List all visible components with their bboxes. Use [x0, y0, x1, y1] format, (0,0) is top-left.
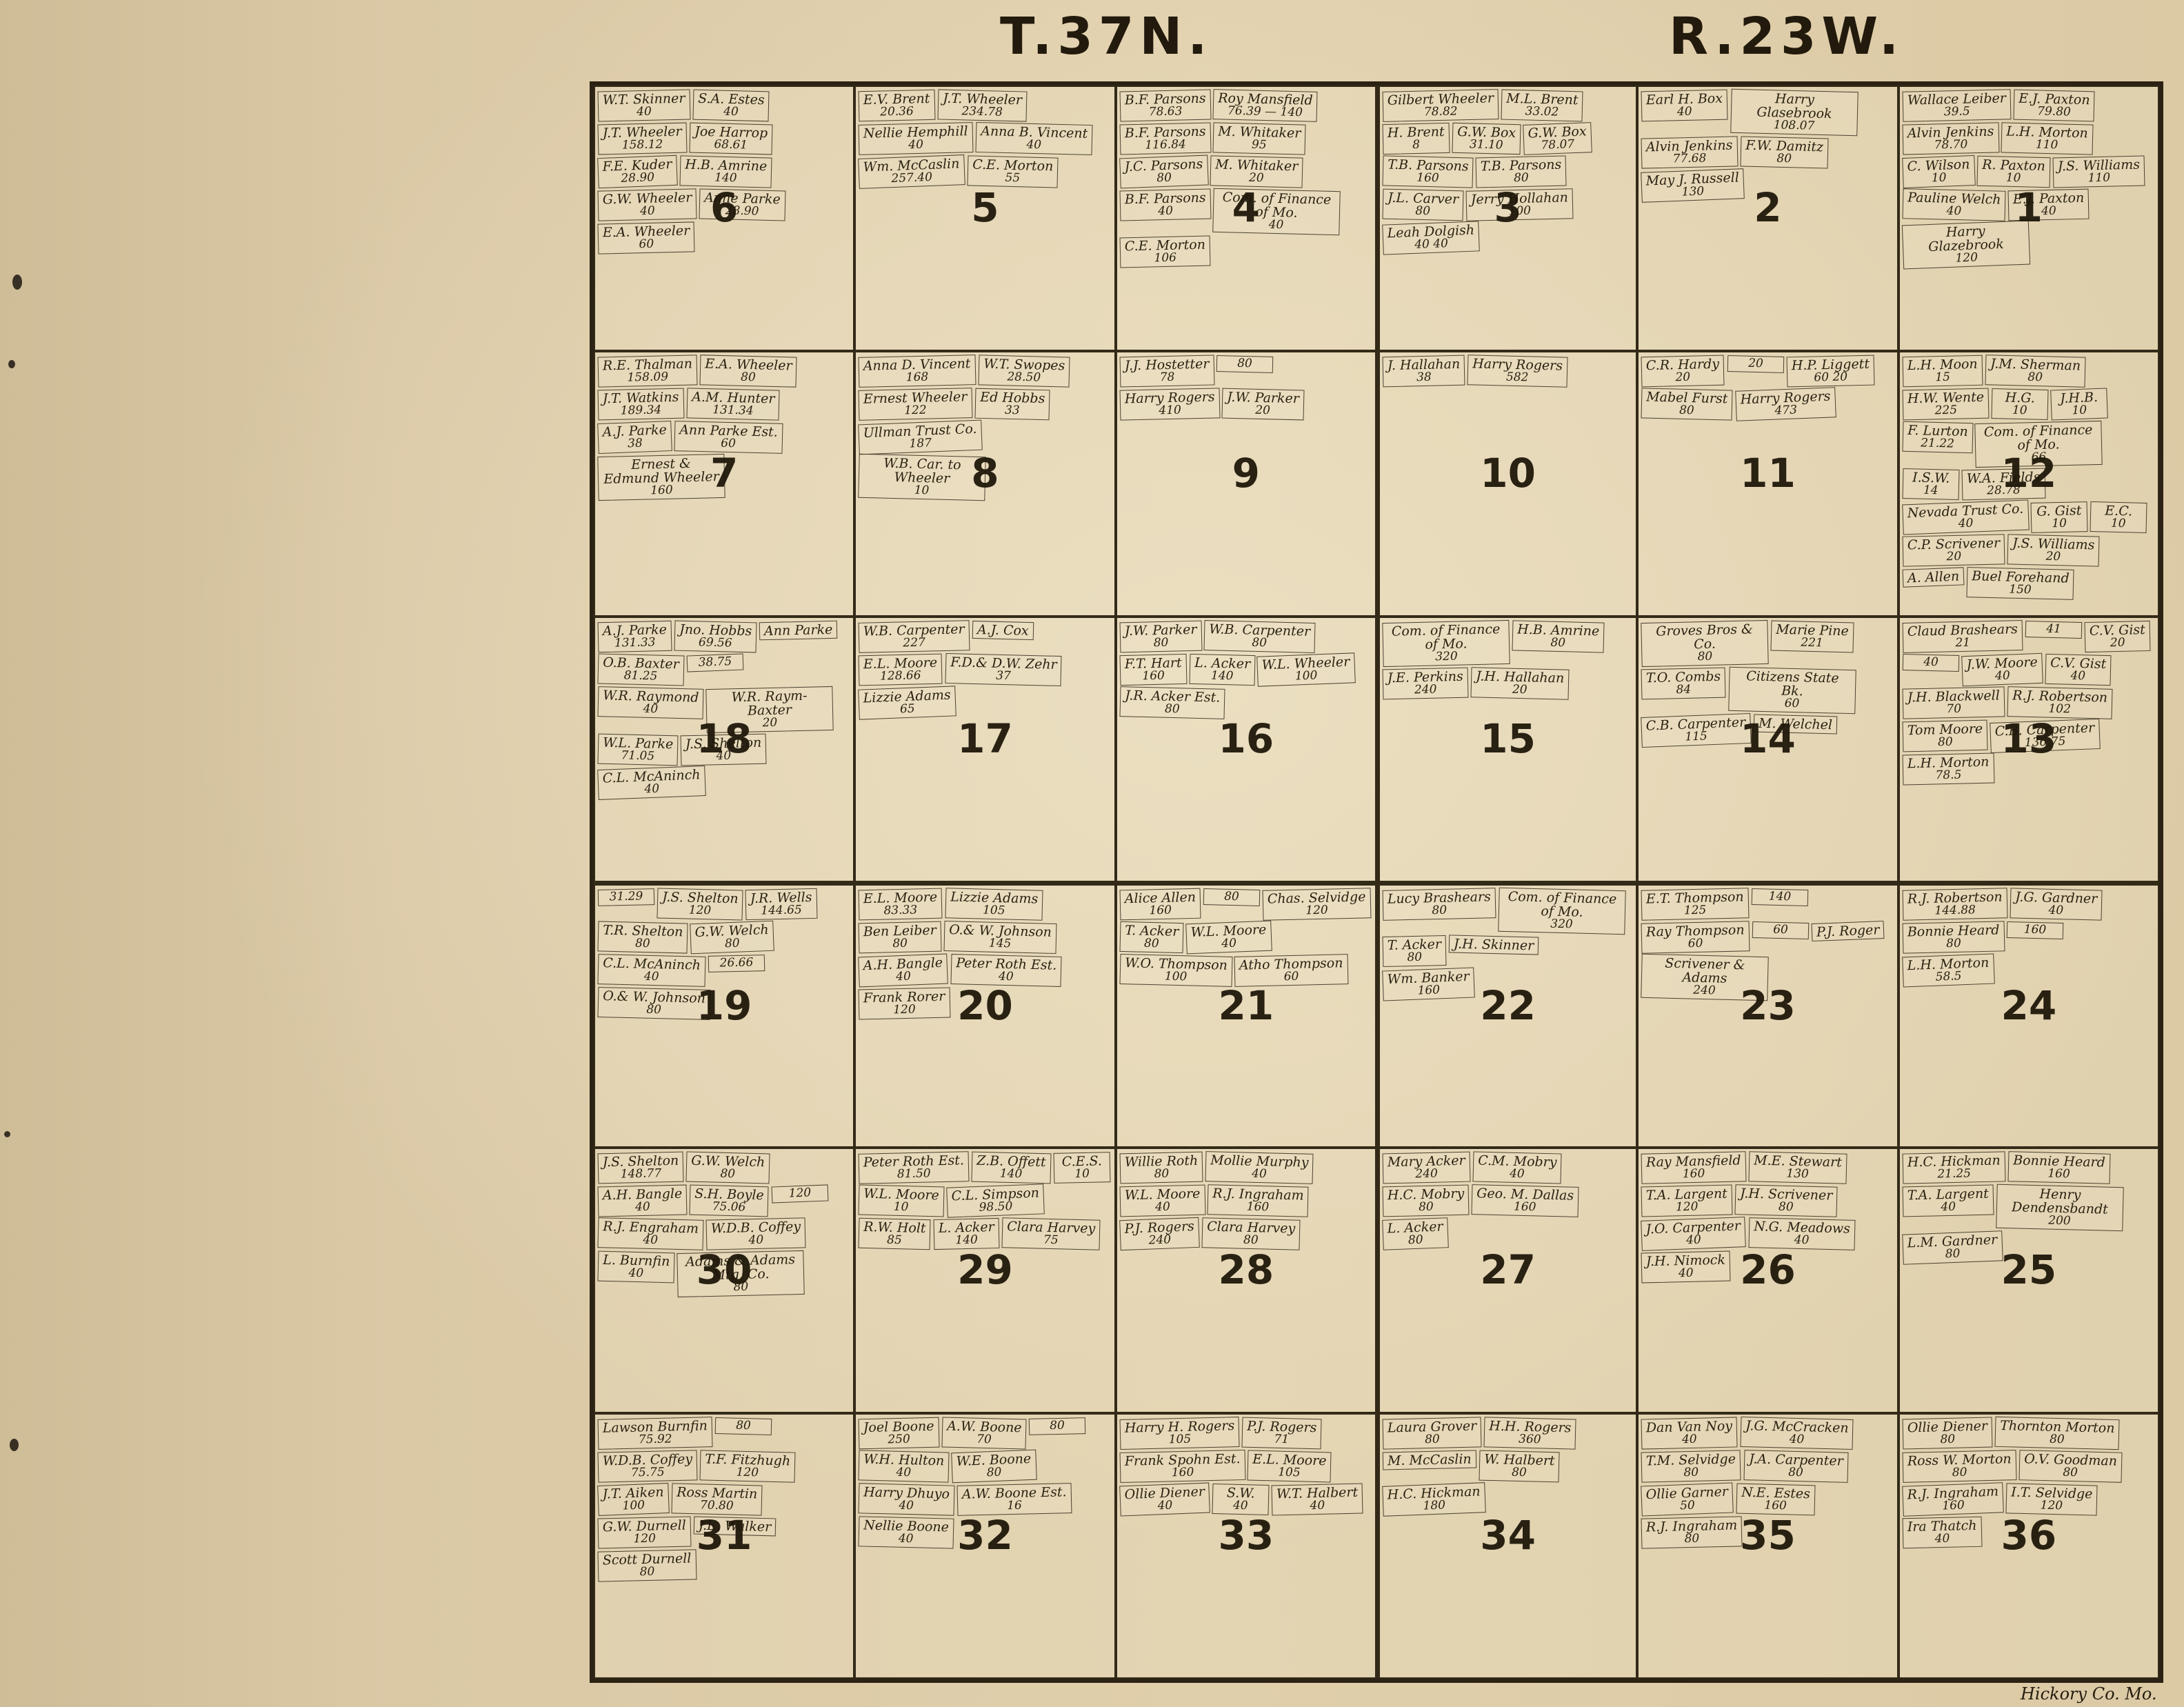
paper-speck	[4, 1131, 10, 1137]
section-14: 14 Groves Bros & Co.80Marie Pine221T.O. …	[1637, 617, 1898, 882]
parcel: T.A. Largent120	[1641, 1184, 1733, 1217]
township-title: T.37N.	[1000, 7, 1212, 66]
parcel: Com. of Finance of Mo.320	[1382, 620, 1510, 667]
paper-speck	[12, 274, 22, 290]
section-29: 29 Peter Roth Est.81.50Z.B. Offett140C.E…	[854, 1148, 1115, 1413]
parcel-list: Joel Boone250A.W. Boone7080W.H. Hulton40…	[859, 1418, 1111, 1674]
parcel-acres: 10	[2036, 517, 2083, 530]
section-24: 24 R.J. Robertson144.88J.G. Gardner40Bon…	[1899, 882, 2159, 1148]
parcel-owner: Com. of Finance of Mo.	[1218, 190, 1336, 221]
parcel: Anne Parke28.90	[699, 188, 786, 221]
parcel: T.O. Combs84	[1641, 668, 1726, 700]
parcel: I.T. Selvidge120	[2006, 1483, 2098, 1515]
parcel: C.R. Hardy20	[1641, 355, 1725, 388]
parcel-list: Laura Grover80H.H. Rogers360M. McCaslinW…	[1383, 1418, 1633, 1674]
parcel: 40	[1902, 654, 1959, 672]
parcel: H.B. Amrine140	[679, 155, 772, 188]
parcel: M. Whitaker20	[1210, 155, 1303, 188]
section-2: 2 Earl H. Box40Harry Glasebrook108.07Alv…	[1637, 86, 1898, 351]
parcel: J.H. Blackwell70	[1902, 686, 2005, 719]
parcel: N.E. Estes160	[1736, 1484, 1815, 1516]
parcel: Harry Rogers410	[1119, 388, 1220, 420]
parcel: Peter Roth Est.81.50	[859, 1151, 970, 1184]
parcel-list: Gilbert Wheeler78.82M.L. Brent33.02H. Br…	[1383, 90, 1633, 346]
parcel: Wm. McCaslin257.40	[859, 154, 965, 189]
parcel: G.W. Durnell120	[598, 1516, 692, 1548]
parcel: T. Acker80	[1119, 921, 1183, 953]
parcel-acres: 76.39 — 140	[1218, 105, 1313, 119]
parcel-owner: A.J. Cox	[977, 623, 1029, 638]
section-28: 28 Willie Roth80Mollie Murphy40W.L. Moor…	[1116, 1148, 1376, 1413]
parcel-acres: 40	[2050, 670, 2105, 683]
parcel: Nellie Boone40	[859, 1516, 954, 1548]
parcel: J.C. Parsons80	[1119, 155, 1208, 189]
parcel: 80	[1029, 1417, 1086, 1435]
parcel: L.M. Gardner80	[1902, 1230, 2003, 1264]
parcel-owner: Ernest & Edmund Wheeler	[602, 456, 720, 486]
parcel-owner: W.R. Raym-Baxter	[711, 688, 829, 719]
parcel: Jno. Hobbs69.56	[674, 621, 757, 653]
parcel-acres: 131.33	[603, 637, 667, 650]
section-36: 36 Ollie Diener80Thornton Morton80Ross W…	[1899, 1413, 2159, 1679]
parcel: 160	[2007, 921, 2064, 939]
parcel: A.W. Boone Est.16	[957, 1483, 1072, 1516]
parcel: Harry Rogers473	[1735, 387, 1836, 421]
parcel: L.H. Morton78.5	[1902, 752, 1994, 785]
parcel: J.S. Williams110	[2053, 155, 2145, 188]
section-10: 10 J. Hallahan38Harry Rogers582	[1376, 351, 1637, 617]
parcel: 80	[715, 1417, 772, 1435]
parcel-acres: 40	[1125, 1201, 1201, 1215]
parcel: H.C. Hickman21.25	[1902, 1151, 2005, 1184]
parcel-acres: 20	[1732, 357, 1779, 370]
parcel: I.S.W.14	[1902, 468, 1959, 500]
parcel: J.E. Perkins240	[1383, 668, 1469, 700]
parcel-list: Com. of Finance of Mo.320H.B. Amrine80J.…	[1383, 621, 1633, 877]
parcel: Ray Mansfield160	[1641, 1151, 1747, 1184]
parcel-acres: 14	[1907, 484, 1954, 497]
parcel: Ben Leiber80	[859, 921, 942, 954]
parcel: C.V. Gist20	[2084, 621, 2150, 652]
parcel-acres: 38.75	[691, 656, 739, 670]
parcel-acres: 160	[2012, 924, 2058, 937]
parcel: J.H. Nimock40	[1641, 1250, 1731, 1283]
parcel: C.V. Gist40	[2045, 654, 2111, 686]
parcel-acres: 71.05	[603, 750, 673, 763]
parcel: T. Acker80	[1383, 935, 1447, 967]
parcel: Ann Parke	[759, 621, 838, 641]
parcel: 20	[1727, 355, 1784, 373]
parcel-acres: 10	[1059, 1168, 1105, 1181]
parcel: B.F. Parsons78.63	[1119, 90, 1211, 122]
parcel: 38.75	[686, 653, 743, 672]
parcel-acres: 31.29	[603, 890, 650, 904]
section-6: 6 W.T. Skinner40S.A. Estes40J.T. Wheeler…	[594, 86, 854, 351]
parcel-acres: 40	[2013, 205, 2085, 219]
parcel: E.C.10	[2090, 501, 2147, 533]
parcel: Wallace Leiber39.5	[1902, 89, 2011, 122]
parcel-owner: P.J. Roger	[1816, 923, 1880, 939]
parcel-acres: 250	[863, 1433, 934, 1447]
parcel: G.W. Box78.07	[1523, 122, 1592, 155]
parcel: Frank Spohn Est.160	[1119, 1450, 1245, 1483]
parcel: Nevada Trust Co.40	[1902, 500, 2029, 535]
parcel: Groves Bros & Co.80	[1641, 620, 1769, 667]
range-title: R.23W.	[1669, 7, 1904, 66]
parcel-acres: 148.77	[603, 1168, 679, 1181]
parcel-owner: M. Welchel	[1759, 717, 1833, 732]
parcel: J.T. Aiken100	[597, 1483, 670, 1516]
parcel: R.J. Ingraham160	[1208, 1184, 1309, 1217]
parcel: E.V. Brent20.36	[859, 90, 936, 121]
parcel-acres: 80	[1208, 890, 1255, 904]
county-label: Hickory Co. Mo.	[2021, 1684, 2157, 1704]
parcel: Ernest & Edmund Wheeler160	[597, 454, 725, 501]
parcel: E.L. Moore83.33	[859, 888, 943, 921]
parcel: Laura Grover80	[1383, 1417, 1482, 1449]
parcel-owner: Adams & Adams Mtg. Co.	[681, 1252, 799, 1283]
parcel: S.A. Estes40	[692, 90, 769, 122]
parcel: N.G. Meadows40	[1748, 1217, 1855, 1250]
parcel: H. Brent8	[1383, 123, 1450, 154]
parcel: J.E. Walker	[694, 1516, 777, 1536]
parcel-list: R.J. Robertson144.88J.G. Gardner40Bonnie…	[1903, 889, 2155, 1143]
parcel: Ollie Garner50	[1641, 1482, 1734, 1516]
plat-map: 6 W.T. Skinner40S.A. Estes40J.T. Wheeler…	[590, 81, 2163, 1683]
parcel: J.J. Hostetter78	[1119, 355, 1214, 387]
parcel: Alice Allen160	[1119, 888, 1201, 921]
parcel-list: Alice Allen16080Chas. Selvidge120T. Acke…	[1120, 889, 1372, 1143]
parcel: Lizzie Adams105	[945, 888, 1043, 920]
parcel-acres: 80	[1221, 357, 1268, 370]
parcel: Harry Rogers582	[1467, 355, 1568, 387]
parcel: Jerry Hollahan100	[1465, 188, 1573, 221]
parcel: Dan Van Noy40	[1641, 1417, 1738, 1449]
parcel-owner: Ann Parke	[764, 623, 833, 638]
section-26: 26 Ray Mansfield160M.E. Stewart130T.A. L…	[1637, 1148, 1898, 1413]
parcel: G.W. Welch80	[690, 921, 774, 955]
parcel: 60	[1752, 921, 1810, 939]
parcel: Harry Glazebrook120	[1901, 220, 2030, 269]
parcel: W.L. Moore40	[1185, 921, 1272, 955]
parcel: J.T. Watkins189.34	[598, 388, 685, 421]
parcel-acres: 20.36	[863, 106, 930, 119]
parcel-acres: 38	[1387, 371, 1461, 385]
parcel: W.L. Wheeler100	[1257, 652, 1356, 686]
parcel: W.T. Skinner40	[598, 89, 691, 121]
parcel: Earl H. Box40	[1641, 90, 1728, 122]
parcel: E.L. Moore105	[1248, 1450, 1332, 1482]
parcel-acres: 80	[1125, 637, 1197, 650]
section-15: 15 Com. of Finance of Mo.320H.B. Amrine8…	[1376, 617, 1637, 882]
parcel: J.W. Parker20	[1222, 388, 1305, 421]
parcel: H.C. Hickman180	[1382, 1482, 1486, 1517]
parcel-list: Ollie Diener80Thornton Morton80Ross W. M…	[1903, 1418, 2155, 1674]
parcel-acres: 40	[1216, 1499, 1263, 1513]
parcel: F.D.& D.W. Zehr37	[945, 653, 1061, 686]
parcel: W.B. Carpenter227	[859, 620, 970, 653]
parcel-acres: 41	[2030, 623, 2077, 636]
parcel: Wm. Banker160	[1382, 968, 1475, 1001]
parcel: Gilbert Wheeler78.82	[1383, 89, 1499, 122]
parcel: R. Paxton10	[1977, 156, 2051, 188]
parcel: Ray Thompson60	[1641, 921, 1750, 954]
section-20: 20 E.L. Moore83.33Lizzie Adams105Ben Lei…	[854, 882, 1115, 1148]
parcel: J.G. Gardner40	[2010, 888, 2102, 920]
parcel: J.R. Acker Est.80	[1119, 686, 1225, 719]
parcel-owner: M. McCaslin	[1387, 1453, 1472, 1468]
parcel: Ann Parke Est.60	[674, 421, 783, 454]
parcel: Claud Brashears21	[1902, 620, 2023, 653]
parcel-list: A.J. Parke131.33Jno. Hobbs69.56Ann Parke…	[598, 621, 850, 877]
parcel-acres: 71	[1247, 1433, 1317, 1447]
parcel-owner: Harry Glazebrook	[1907, 223, 2025, 255]
parcel: F. Lurton21.22	[1902, 421, 1973, 453]
parcel: B.F. Parsons116.84	[1119, 122, 1211, 154]
parcel: Marie Pine221	[1771, 621, 1854, 653]
parcel: Lawson Burnfin75.92	[598, 1417, 713, 1450]
parcel: C.B. Carpenter115	[1641, 713, 1752, 748]
parcel: Anna B. Vincent40	[976, 122, 1093, 155]
parcel-list: 31.29J.S. Shelton120J.R. Wells144.65T.R.…	[598, 889, 850, 1143]
parcel: Mabel Furst80	[1641, 388, 1733, 420]
parcel: O.& W. Johnson145	[944, 921, 1057, 954]
section-16: 16 J.W. Parker80W.B. Carpenter80F.T. Har…	[1116, 617, 1376, 882]
parcel: M. Welchel	[1754, 715, 1838, 735]
parcel-list: Earl H. Box40Harry Glasebrook108.07Alvin…	[1641, 90, 1894, 346]
parcel: A.M. Hunter131.34	[686, 388, 779, 420]
section-27: 27 Mary Acker240C.M. Mobry40H.C. Mobry80…	[1376, 1148, 1637, 1413]
parcel: W.T. Halbert40	[1271, 1483, 1363, 1515]
section-3: 3 Gilbert Wheeler78.82M.L. Brent33.02H. …	[1376, 86, 1637, 351]
parcel: W.L. Parke71.05	[597, 734, 678, 766]
parcel: Harry Dhuyo40	[859, 1483, 955, 1515]
parcel-acres: 80	[682, 1280, 799, 1295]
parcel: F.T. Hart160	[1119, 654, 1187, 686]
parcel-acres: 26.66	[713, 957, 760, 970]
parcel: B.F. Parsons40	[1119, 188, 1211, 221]
parcel-list: Peter Roth Est.81.50Z.B. Offett140C.E.S.…	[859, 1152, 1111, 1408]
parcel-owner: J.H. Skinner	[1454, 937, 1534, 953]
parcel: G.W. Wheeler40	[598, 188, 697, 221]
parcel: A. Allen	[1902, 567, 1964, 588]
parcel-acres: 80	[863, 937, 936, 951]
parcel: H.H. Rogers360	[1484, 1417, 1576, 1449]
parcel: C.P. Scrivener20	[1902, 534, 2005, 566]
parcel: J.S. Shelton40	[681, 734, 767, 766]
parcel: W.L. Moore10	[859, 1184, 945, 1217]
parcel-acres: 80	[1125, 1168, 1199, 1181]
parcel: F.W. Damitz80	[1740, 137, 1828, 169]
parcel-list: B.F. Parsons78.63Roy Mansfield76.39 — 14…	[1120, 90, 1372, 346]
parcel: P.J. Rogers240	[1119, 1217, 1200, 1250]
parcel-acres: 10	[2095, 517, 2142, 530]
parcel: A.J. Parke131.33	[598, 621, 672, 652]
parcel-acres: 140	[939, 1234, 994, 1248]
parcel-owner: Groves Bros & Co.	[1646, 622, 1764, 652]
parcel: M. Whitaker95	[1213, 122, 1306, 154]
parcel: Bonnie Heard80	[1902, 921, 2005, 953]
parcel-acres: 33	[979, 404, 1045, 418]
parcel-list: E.T. Thompson125140Ray Thompson6060P.J. …	[1641, 889, 1894, 1143]
parcel-acres: 8	[1387, 139, 1445, 152]
parcel: Tom Moore80	[1902, 720, 1987, 752]
parcel: H.C. Mobry80	[1383, 1185, 1470, 1217]
section-17: 17 W.B. Carpenter227A.J. CoxE.L. Moore12…	[854, 617, 1115, 882]
parcel: M.L. Brent33.02	[1501, 90, 1583, 122]
parcel: W.D.B. Coffey75.75	[598, 1450, 698, 1482]
parcel: Citizens State Bk.60	[1728, 667, 1856, 715]
parcel: C.B. Carpenter136.75	[1990, 719, 2100, 753]
parcel: G.W. Welch80	[686, 1152, 770, 1184]
parcel: Scrivener & Adams240	[1641, 954, 1770, 1001]
parcel: Joel Boone250	[859, 1417, 940, 1450]
parcel: T.B. Parsons80	[1476, 155, 1567, 188]
parcel-list: Wallace Leiber39.5E.J. Paxton79.80Alvin …	[1903, 90, 2155, 346]
section-1: 1 Wallace Leiber39.5E.J. Paxton79.80Alvi…	[1899, 86, 2159, 351]
parcel: W.T. Swopes28.50	[978, 355, 1070, 387]
parcel-owner: Citizens State Bk.	[1733, 669, 1851, 699]
parcel-list: Lawson Burnfin75.9280W.D.B. Coffey75.75T…	[598, 1418, 850, 1674]
parcel-acres: 140	[1194, 670, 1250, 683]
parcel: Ullman Trust Co.187	[859, 420, 983, 455]
section-35: 35 Dan Van Noy40J.G. McCracken40T.M. Sel…	[1637, 1413, 1898, 1679]
parcel-owner: W.B. Car. to Wheeler	[863, 456, 981, 486]
parcel-list: Claud Brashears2141C.V. Gist2040J.W. Moo…	[1903, 621, 2155, 877]
parcel-acres: 40	[1646, 106, 1723, 119]
parcel: Anna D. Vincent168	[859, 355, 976, 388]
parcel: S.H. Boyle75.06	[690, 1185, 770, 1217]
section-34: 34 Laura Grover80H.H. Rogers360M. McCasl…	[1376, 1413, 1637, 1679]
parcel: W.A. Fields28.78	[1961, 468, 2045, 501]
parcel-list: Willie Roth80Mollie Murphy40W.L. Moore40…	[1120, 1152, 1372, 1408]
parcel: J.T. Wheeler158.12	[598, 123, 688, 155]
parcel-list: E.V. Brent20.36J.T. Wheeler234.78Nellie …	[859, 90, 1111, 346]
parcel: W.B. Car. to Wheeler10	[859, 454, 987, 501]
parcel-list: H.C. Hickman21.25Bonnie Heard160T.A. Lar…	[1903, 1152, 2155, 1408]
parcel: Harry Glasebrook108.07	[1730, 89, 1859, 137]
parcel: L.H. Morton110	[2001, 122, 2094, 154]
parcel: Adams & Adams Mtg. Co.80	[677, 1250, 804, 1297]
parcel-acres: 40	[1907, 1533, 1977, 1546]
parcel: M. McCaslin	[1383, 1450, 1476, 1470]
parcel: Geo. M. Dallas160	[1472, 1184, 1579, 1217]
parcel: Scott Durnell80	[598, 1549, 697, 1581]
parcel: R.J. Ingraham80	[1641, 1516, 1743, 1548]
section-19: 19 31.29J.S. Shelton120J.R. Wells144.65T…	[594, 882, 854, 1148]
parcel: C.E.S.10	[1053, 1152, 1110, 1184]
parcel: W.B. Carpenter80	[1204, 620, 1316, 653]
parcel-acres: 10	[863, 483, 981, 499]
parcel: Bonnie Heard160	[2007, 1151, 2110, 1184]
parcel-owner: J.E. Walker	[699, 1519, 772, 1535]
parcel-list: E.L. Moore83.33Lizzie Adams105Ben Leiber…	[859, 889, 1111, 1143]
parcel: Ross W. Morton80	[1902, 1450, 2016, 1483]
section-22: 22 Lucy Brashears80Com. of Finance of Mo…	[1376, 882, 1637, 1148]
parcel: T.M. Selvidge80	[1641, 1450, 1741, 1482]
parcel-acres: 80	[1034, 1419, 1081, 1433]
parcel-acres: 20	[2090, 637, 2145, 650]
parcel: O.V. Goodman80	[2018, 1450, 2122, 1483]
parcel-acres: 80	[1124, 937, 1179, 951]
parcel: W. Halbert80	[1479, 1450, 1559, 1483]
parcel-acres: 189.34	[603, 404, 679, 418]
parcel: J.S. Shelton148.77	[598, 1152, 684, 1184]
parcel-acres: 15	[1907, 371, 1978, 385]
parcel-acres: 40	[603, 1267, 670, 1281]
parcel-acres: 83.33	[863, 904, 938, 918]
parcel: R.J. Engraham40	[597, 1217, 703, 1250]
parcel: Peter Roth Est.40	[950, 954, 1061, 987]
parcel: O.& W. Johnson80	[597, 987, 710, 1020]
parcel: H.G.10	[1991, 388, 2048, 420]
parcel-list: Ray Mansfield160M.E. Stewart130T.A. Larg…	[1641, 1152, 1894, 1408]
parcel: Chas. Selvidge120	[1262, 888, 1371, 921]
parcel: 41	[2025, 621, 2083, 639]
parcel: T.B. Parsons160	[1382, 155, 1474, 188]
parcel: Z.B. Offett140	[972, 1152, 1052, 1184]
parcel-owner: Com. of Finance of Mo.	[1387, 622, 1505, 652]
parcel: 120	[771, 1184, 828, 1203]
parcel: L. Acker80	[1382, 1217, 1449, 1250]
parcel: W.R. Raymond40	[597, 686, 703, 719]
parcel: O.B. Baxter81.25	[597, 653, 684, 686]
section-4: 4 B.F. Parsons78.63Roy Mansfield76.39 — …	[1116, 86, 1376, 351]
parcel: F.E. Kuder28.90	[597, 155, 677, 188]
parcel: A.W. Boone70	[942, 1417, 1027, 1450]
section-30: 30 J.S. Shelton148.77G.W. Welch80A.H. Ba…	[594, 1148, 854, 1413]
parcel-list: W.B. Carpenter227A.J. CoxE.L. Moore128.6…	[859, 621, 1111, 877]
parcel-owner: A. Allen	[1907, 570, 1959, 586]
section-33: 33 Harry H. Rogers105P.J. Rogers71Frank …	[1116, 1413, 1376, 1679]
parcel: Nellie Hemphill40	[859, 122, 974, 155]
parcel: R.E. Thalman158.09	[598, 355, 698, 387]
parcel: A.H. Bangle40	[598, 1185, 688, 1217]
section-12: 12 L.H. Moon15J.M. Sherman80H.W. Wente22…	[1899, 351, 2159, 617]
parcel: Mollie Murphy40	[1205, 1151, 1314, 1184]
parcel: J.M. Sherman80	[1985, 355, 2085, 387]
parcel: Com. of Finance of Mo.66	[1975, 421, 2103, 468]
parcel: Henry Dendensbandt200	[1996, 1184, 2124, 1232]
section-23: 23 E.T. Thompson125140Ray Thompson6060P.…	[1637, 882, 1898, 1148]
parcel-acres: 10	[1996, 404, 2043, 417]
parcel-owner: Com. of Finance of Mo.	[1980, 423, 2098, 453]
parcel: 31.29	[598, 888, 655, 906]
parcel: Clara Harvey75	[1001, 1217, 1100, 1250]
parcel-acres: 240	[1387, 683, 1463, 697]
parcel-acres: 31.10	[1456, 139, 1515, 152]
parcel-acres: 80	[1387, 951, 1442, 965]
parcel: A.J. Cox	[972, 621, 1034, 640]
parcel-acres: 10	[1982, 172, 2045, 186]
section-11: 11 C.R. Hardy2020H.P. Liggett60 20Mabel …	[1637, 351, 1898, 617]
parcel-list: L.H. Moon15J.M. Sherman80H.W. Wente225H.…	[1903, 356, 2155, 612]
parcel-acres: 160	[1125, 670, 1182, 683]
parcel: M.E. Stewart130	[1749, 1151, 1847, 1184]
section-8: 8 Anna D. Vincent168W.T. Swopes28.50Erne…	[854, 351, 1115, 617]
parcel: C.M. Mobry40	[1472, 1151, 1561, 1184]
parcel-acres: 21.22	[1907, 437, 1967, 451]
parcel: G. Gist10	[2031, 501, 2088, 533]
parcel: E.L. Moore128.66	[859, 654, 943, 686]
parcel-acres: 40	[1218, 218, 1335, 233]
parcel-acres: 85	[863, 1234, 926, 1248]
parcel: Ed Hobbs33	[974, 388, 1050, 421]
parcel: Lucy Brashears80	[1383, 888, 1496, 921]
parcel-list: C.R. Hardy2020H.P. Liggett60 20Mabel Fur…	[1641, 356, 1894, 612]
parcel: Ira Thatch40	[1902, 1517, 1982, 1549]
parcel: J.W. Parker80	[1119, 621, 1202, 653]
